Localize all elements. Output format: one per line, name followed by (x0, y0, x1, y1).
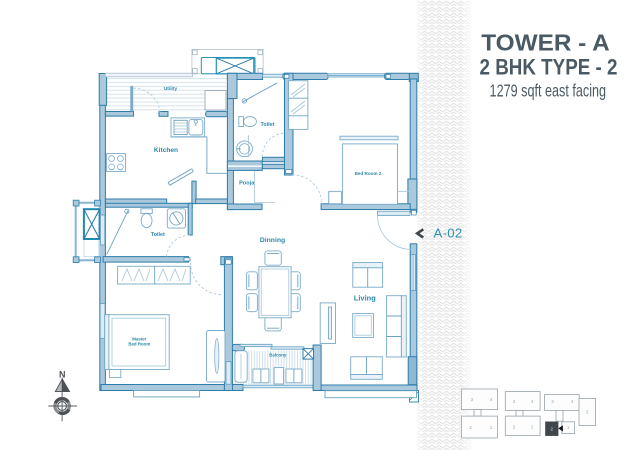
svg-text:Balcony: Balcony (269, 352, 287, 357)
svg-text:Dinning: Dinning (260, 237, 285, 244)
svg-text:A-02: A-02 (434, 225, 463, 240)
svg-text:1279 sqft east facing: 1279 sqft east facing (490, 81, 607, 101)
svg-text:Toilet: Toilet (261, 122, 275, 128)
svg-text:N: N (59, 370, 66, 380)
svg-text:Pooja: Pooja (239, 181, 255, 187)
svg-text:TOWER - A: TOWER - A (481, 30, 610, 56)
svg-text:2 BHK TYPE - 2: 2 BHK TYPE - 2 (480, 54, 618, 79)
svg-text:Toilet: Toilet (151, 232, 165, 238)
svg-text:Utility: Utility (164, 86, 178, 92)
svg-text:Master: Master (132, 336, 146, 341)
svg-text:Living: Living (354, 294, 377, 303)
svg-text:Bed Room: Bed Room (128, 342, 150, 347)
svg-text:Kitchen: Kitchen (154, 147, 178, 154)
svg-text:Bed Room 2: Bed Room 2 (355, 171, 382, 176)
